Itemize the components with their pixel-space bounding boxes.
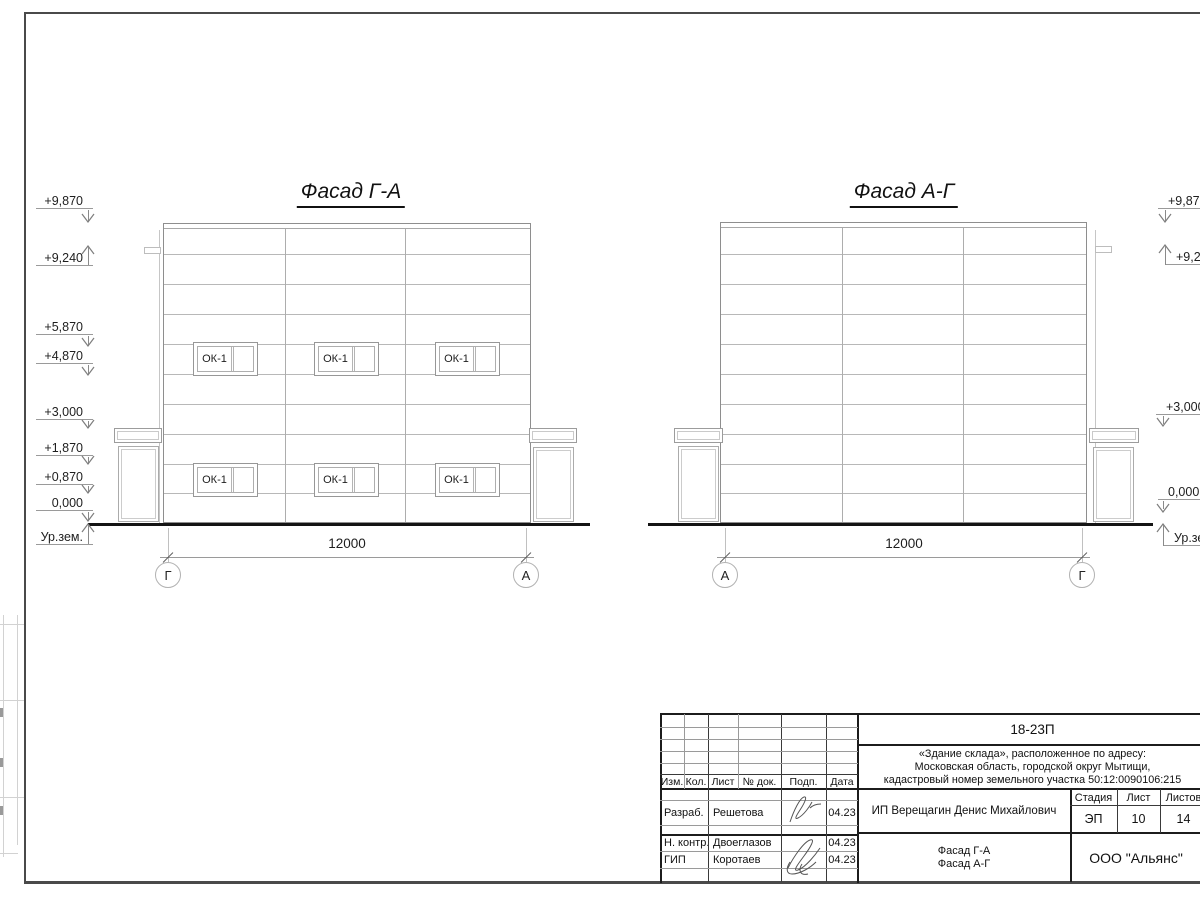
panel-joint-line [164,314,530,315]
stamp-grid-line [660,825,858,826]
elevation-mark: +9,870 [1158,194,1200,209]
stamp-grid-line [660,739,858,740]
stamp-stage-header: Стадия [1070,790,1117,805]
window-mullion [352,347,355,371]
stamp-col-header: Подп. [781,775,826,789]
panel-joint-line [164,434,530,435]
facade-title: Фасад А-Г [850,180,958,208]
elevation-arrow-down [81,213,95,223]
stamp-col-header: Лист [708,775,738,789]
axis-bubble: А [712,562,738,588]
stamp-signer-date: 04.23 [826,852,858,868]
window-ok1: ОК-1 [193,342,258,376]
window-mullion [231,347,234,371]
panel-joint-line [164,284,530,285]
sheet-frame-top [24,12,1200,14]
stamp-signer-name: Двоеглазов [710,835,781,851]
elevation-mark: 0,000 [1158,485,1200,500]
axis-letter: Г [164,568,171,583]
panel-joint-line [721,374,1086,375]
sheet-frame-left [24,12,26,884]
stamp-col-header: Дата [826,775,858,789]
elevation-arrow-down [81,455,95,465]
elevation-arrow-down [81,337,95,347]
ground-line [648,523,1153,526]
stamp-signer-role: Н. контр. [661,835,708,851]
window-label: ОК-1 [198,347,231,371]
left-strip-text-fragment [0,758,3,767]
panel-joint-line [721,493,1086,494]
stamp-signer-role: ГИП [661,852,708,868]
panel-joint-line [721,284,1086,285]
window-frame: ОК-1 [197,467,254,493]
dimension-line [160,557,534,558]
axis-bubble: Г [1069,562,1095,588]
panel-joint-line [721,314,1086,315]
left-strip-line [3,615,4,857]
window-label: ОК-1 [319,468,352,492]
elevation-mark: +9,870 [36,194,93,209]
window-ok1: ОК-1 [193,463,258,497]
parapet-line [164,228,530,229]
stamp-signer-name: Коротаев [710,852,781,868]
window-frame: ОК-1 [439,467,496,493]
downpipe-bracket [1095,246,1112,253]
drawing-sheet: Фасад Г-А ОК-1 ОК-1 ОК-1 ОК-1 ОК-1 ОК-1 … [0,0,1200,900]
porch-canopy [529,428,577,443]
bay-divider-line [405,229,406,522]
facade-title: Фасад Г-А [297,180,405,208]
window-label: ОК-1 [198,468,231,492]
window-mullion [352,468,355,492]
left-strip-line [17,615,18,845]
axis-letter: А [522,568,531,583]
parapet-line [721,227,1086,228]
dimension-label: 12000 [328,536,366,551]
elevation-mark: +0,870 [36,470,93,485]
stamp-object-description: «Здание склада», расположенное по адресу… [860,746,1200,788]
window-frame: ОК-1 [318,346,375,372]
elevation-arrow-down [1158,213,1172,223]
bay-divider-line [285,229,286,522]
left-strip-line [0,624,24,625]
elevation-mark: Ур.зем. [1164,531,1200,546]
window-label: ОК-1 [440,468,473,492]
porch [533,447,574,522]
stamp-col-header: Кол. [684,775,708,789]
panel-joint-line [164,404,530,405]
bay-divider-line [963,228,964,522]
elevation-mark: +9,240 [36,251,93,266]
left-strip-line [0,797,24,798]
panel-joint-line [721,344,1086,345]
axis-bubble: Г [155,562,181,588]
elevation-mark: +4,870 [36,349,93,364]
stamp-sheet-header: Лист [1117,790,1160,805]
elevation-arrow-down [1156,503,1170,513]
sheet-frame-bottom [24,881,1200,884]
stamp-client: ИП Верещагин Денис Михайлович [858,789,1070,833]
dimension-line [717,557,1090,558]
elevation-mark: 0,000 [36,496,93,511]
left-strip-line [0,853,18,854]
stamp-sheet-value: 10 [1117,806,1160,832]
panel-joint-line [721,464,1086,465]
signature [784,792,824,828]
dimension-label: 12000 [885,536,923,551]
elevation-arrow-down [81,512,95,522]
stamp-signer-date: 04.23 [826,835,858,851]
stamp-grid-line [660,751,858,752]
stamp-grid-line [660,763,858,764]
window-mullion [231,468,234,492]
elevation-mark: +5,870 [36,320,93,335]
porch-canopy [674,428,723,443]
bay-divider-line [842,228,843,522]
panel-joint-line [721,404,1086,405]
elevation-mark: +3,000 [36,405,93,420]
axis-bubble: А [513,562,539,588]
building-outline [720,222,1087,523]
window-frame: ОК-1 [318,467,375,493]
elevation-mark: +9,240 [1166,250,1200,265]
elevation-arrow-down [81,366,95,376]
stamp-grid-line [660,868,858,869]
window-label: ОК-1 [440,347,473,371]
stamp-grid-line [660,727,858,728]
stamp-col-header: Изм. [660,775,684,789]
ground-line [88,523,590,526]
downpipe-bracket [144,247,161,254]
porch-canopy [1089,428,1139,443]
signature [780,834,826,880]
stamp-stage-value: ЭП [1070,806,1117,832]
elevation-arrow-down [81,484,95,494]
left-strip-text-fragment [0,708,3,717]
axis-letter: Г [1078,568,1085,583]
elevation-mark: +3,000 [1156,400,1200,415]
stamp-signer-name: Решетова [710,800,781,825]
window-mullion [473,468,476,492]
window-mullion [473,347,476,371]
elevation-arrow-down [81,419,95,429]
porch [1093,447,1134,522]
window-frame: ОК-1 [197,346,254,372]
elevation-arrow-down [1156,417,1170,427]
panel-joint-line [721,434,1086,435]
porch [118,446,159,522]
stamp-company: ООО "Альянс" [1072,834,1200,881]
stamp-doc-number: 18-23П [858,714,1200,744]
downpipe [159,230,160,523]
stamp-col-header: № док. [738,775,781,789]
elevation-mark: Ур.зем. [36,530,93,545]
window-ok1: ОК-1 [314,342,379,376]
window-ok1: ОК-1 [314,463,379,497]
elevation-mark: +1,870 [36,441,93,456]
axis-letter: А [721,568,730,583]
window-ok1: ОК-1 [435,463,500,497]
window-label: ОК-1 [319,347,352,371]
left-strip-text-fragment [0,806,3,815]
panel-joint-line [721,254,1086,255]
left-strip-line [0,700,24,701]
window-ok1: ОК-1 [435,342,500,376]
stamp-signer-date: 04.23 [826,800,858,825]
stamp-sheets-header: Листов [1160,790,1200,805]
porch-canopy [114,428,162,443]
window-frame: ОК-1 [439,346,496,372]
panel-joint-line [164,254,530,255]
stamp-sheets-value: 14 [1160,806,1200,832]
stamp-drawing-title: Фасад Г-А Фасад А-Г [858,834,1070,881]
porch [678,446,719,522]
stamp-signer-role: Разраб. [661,800,708,825]
